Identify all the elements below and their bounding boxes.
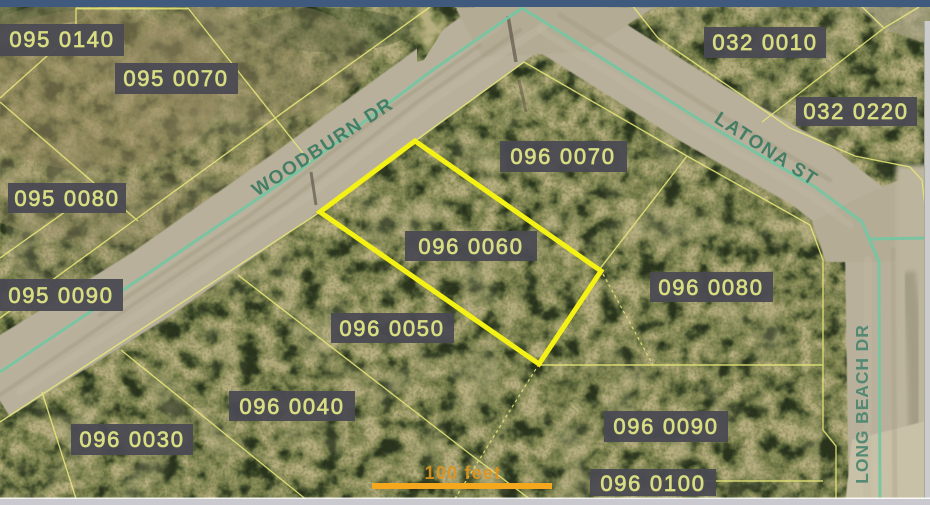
svg-text:095 0070: 095 0070 bbox=[123, 66, 228, 91]
svg-text:096 0080: 096 0080 bbox=[658, 275, 763, 300]
svg-text:096 0040: 096 0040 bbox=[239, 394, 344, 419]
svg-text:095 0140: 095 0140 bbox=[9, 27, 114, 52]
svg-text:096 0090: 096 0090 bbox=[613, 414, 718, 439]
svg-text:095 0080: 095 0080 bbox=[14, 186, 119, 211]
svg-text:032 0010: 032 0010 bbox=[712, 30, 817, 55]
svg-text:096 0070: 096 0070 bbox=[510, 144, 615, 169]
svg-text:095 0090: 095 0090 bbox=[8, 283, 113, 308]
svg-text:096 0100: 096 0100 bbox=[600, 471, 705, 496]
svg-text:096 0050: 096 0050 bbox=[339, 316, 444, 341]
svg-text:096 0030: 096 0030 bbox=[79, 427, 184, 452]
svg-text:096 0060: 096 0060 bbox=[418, 234, 523, 259]
svg-text:100 feet: 100 feet bbox=[425, 463, 502, 483]
svg-text:032 0220: 032 0220 bbox=[803, 99, 908, 124]
svg-text:LONG BEACH DR: LONG BEACH DR bbox=[852, 324, 872, 483]
